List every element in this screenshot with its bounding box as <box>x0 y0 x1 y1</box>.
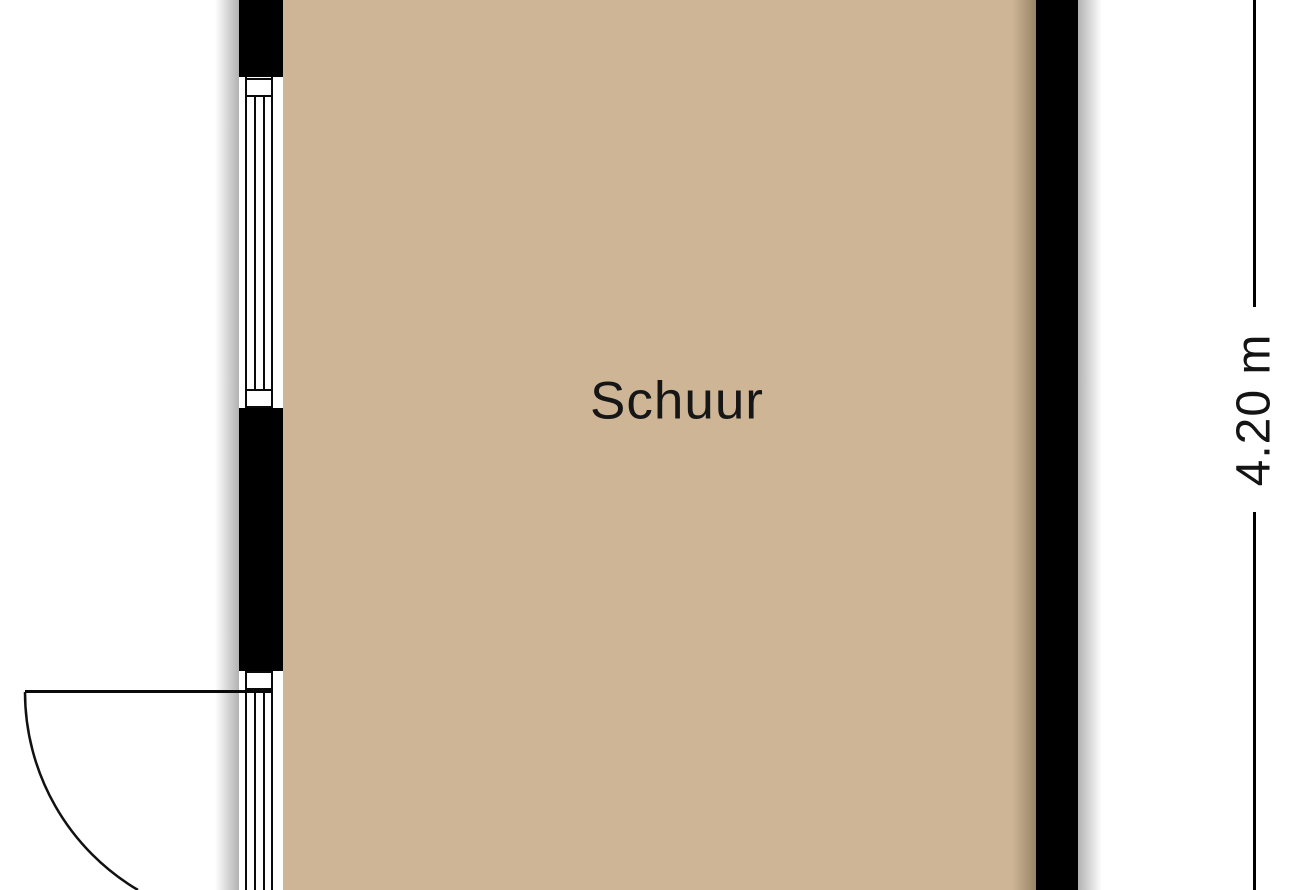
dimension-label: 4.20 m <box>1227 334 1282 487</box>
wall-shadow-left <box>215 0 239 890</box>
window-glass-line <box>263 97 265 389</box>
wall-shadow-right <box>1078 0 1102 890</box>
door-leaf-open <box>25 690 273 693</box>
window-frame-edge-right <box>271 77 273 408</box>
door-frame-box <box>245 671 273 690</box>
door-panel-line <box>254 690 256 890</box>
dimension-line-top <box>1253 0 1256 307</box>
wall-right <box>1036 0 1078 890</box>
window-glass-line <box>254 97 256 389</box>
floorplan-canvas: 4.20 m Schuur <box>0 0 1300 890</box>
wall-left-middle-segment <box>239 408 283 671</box>
floor-inner-shadow <box>1012 0 1036 890</box>
window-frame-box-top <box>245 78 273 97</box>
door-panel-line <box>271 690 273 890</box>
window-frame-box-bottom <box>245 389 273 408</box>
door-panel-line <box>245 690 247 890</box>
room-label: Schuur <box>590 371 764 432</box>
wall-left-upper-segment <box>239 0 283 77</box>
window-frame-edge-left <box>245 77 247 408</box>
door-panel-line <box>263 690 265 890</box>
room-floor <box>283 0 1036 890</box>
dimension-line-bottom <box>1253 512 1256 890</box>
